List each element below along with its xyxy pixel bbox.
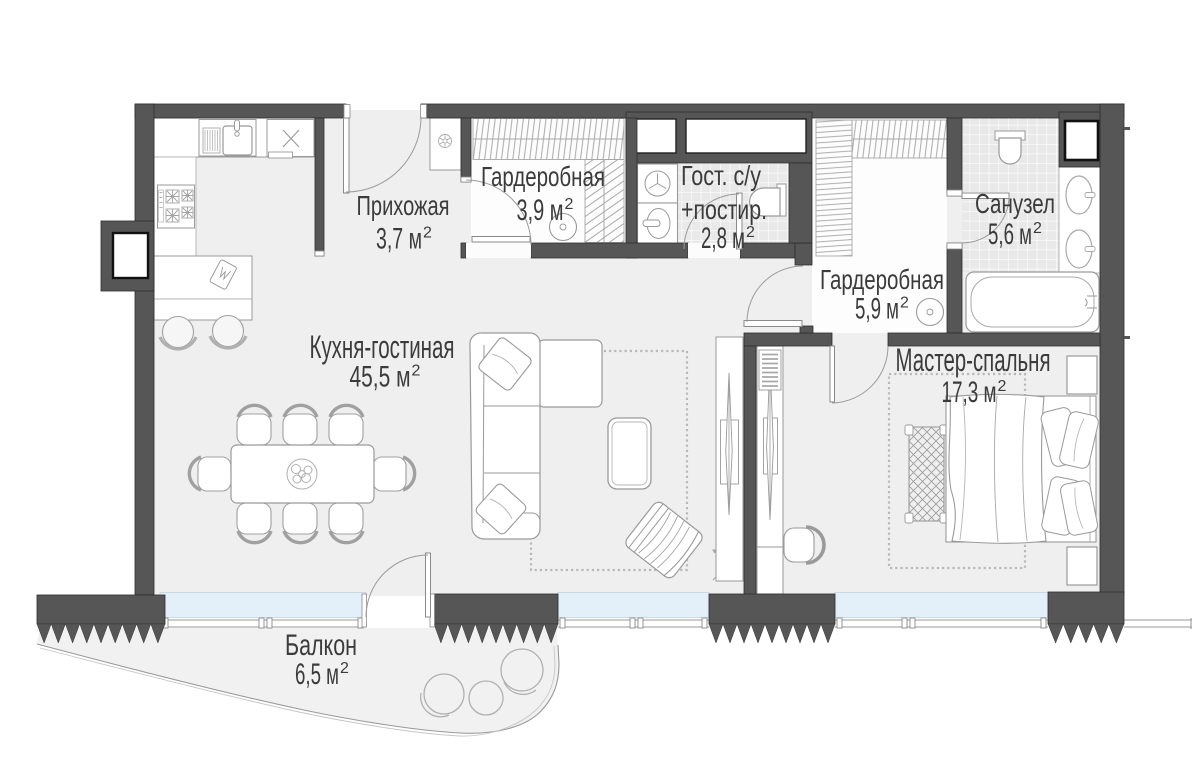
svg-text:2: 2 xyxy=(423,225,432,242)
svg-text:3,7 м: 3,7 м xyxy=(376,223,422,256)
svg-text:Гост. с/у: Гост. с/у xyxy=(681,160,761,191)
svg-text:6,5 м: 6,5 м xyxy=(295,658,339,691)
svg-text:5,6 м: 5,6 м xyxy=(988,218,1032,251)
svg-text:5,9 м: 5,9 м xyxy=(855,293,899,326)
svg-text:Гардеробная: Гардеробная xyxy=(481,161,605,192)
svg-text:Прихожая: Прихожая xyxy=(357,190,450,221)
svg-text:2: 2 xyxy=(412,363,421,380)
svg-text:2: 2 xyxy=(1033,220,1042,237)
svg-text:17,3 м: 17,3 м xyxy=(942,376,997,409)
svg-text:Мастер-спальня: Мастер-спальня xyxy=(896,342,1051,378)
svg-text:3,9 м: 3,9 м xyxy=(517,194,564,227)
svg-text:Гардеробная: Гардеробная xyxy=(820,264,944,295)
svg-text:2: 2 xyxy=(565,196,574,213)
svg-text:Санузел: Санузел xyxy=(975,188,1055,219)
svg-text:2: 2 xyxy=(998,378,1007,395)
svg-text:45,5 м: 45,5 м xyxy=(350,361,411,394)
svg-text:+постир.: +постир. xyxy=(681,194,767,225)
svg-text:2,8 м: 2,8 м xyxy=(701,222,745,255)
svg-text:2: 2 xyxy=(900,295,909,312)
svg-text:2: 2 xyxy=(746,224,755,241)
svg-text:2: 2 xyxy=(340,660,349,677)
